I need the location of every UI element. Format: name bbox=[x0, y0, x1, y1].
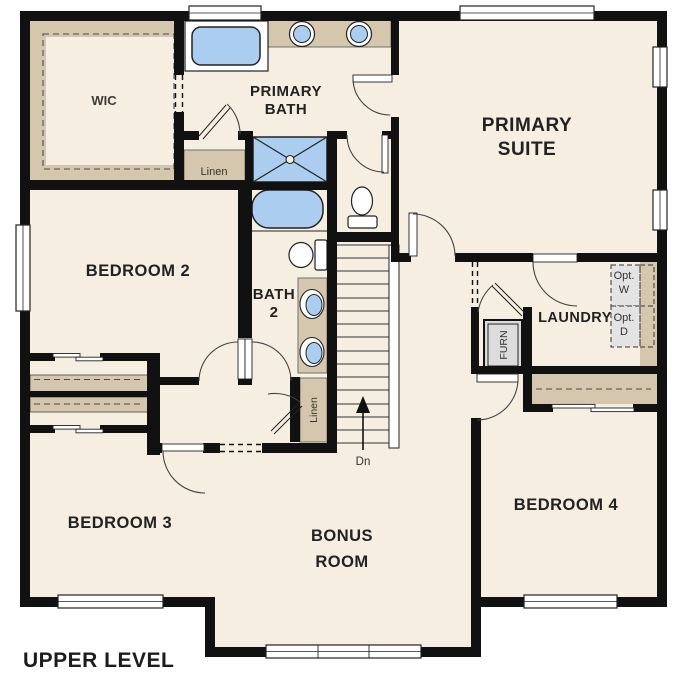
bedroom2-closet bbox=[30, 375, 148, 392]
primary-suite-top-window bbox=[460, 6, 594, 20]
linen-upper-label: Linen bbox=[201, 166, 228, 178]
bedroom4-closet-slider bbox=[552, 404, 595, 408]
primary-suite-right-window-1 bbox=[653, 47, 667, 87]
water-closet-door-panel bbox=[382, 135, 388, 173]
bath2-label-2: 2 bbox=[270, 304, 279, 321]
bedroom4-label: BEDROOM 4 bbox=[514, 496, 619, 514]
primary-vanity-counter bbox=[267, 20, 391, 47]
primary-sink-right-basin bbox=[351, 26, 368, 43]
bonus-room-label-1: BONUS bbox=[311, 527, 373, 545]
bath2-sink-bottom-basin bbox=[306, 343, 322, 364]
stairs-down-label: Dn bbox=[356, 456, 371, 468]
opt-dryer-label-2: D bbox=[620, 326, 628, 338]
bath2-sink-top-basin bbox=[306, 295, 322, 316]
bath2-bathtub-icon bbox=[252, 190, 323, 228]
opt-dryer-label-1: Opt. bbox=[614, 312, 635, 324]
primary-bath-label-1: PRIMARY bbox=[250, 83, 322, 100]
bedroom4-window bbox=[524, 595, 617, 608]
bedroom3-window bbox=[58, 595, 163, 608]
primary-bath-window bbox=[189, 6, 261, 20]
laundry-label: LAUNDRY bbox=[538, 310, 612, 326]
primary-suite-label-2: SUITE bbox=[498, 139, 556, 160]
linen-hall-label: Linen bbox=[308, 397, 320, 423]
bonus-room-window bbox=[266, 645, 421, 658]
primary-suite-door-panel bbox=[409, 213, 417, 256]
opt-washer-label-2: W bbox=[619, 284, 630, 296]
primary-suite-label-1: PRIMARY bbox=[482, 115, 572, 136]
bath-to-suite-door-panel bbox=[353, 75, 392, 82]
bedroom4-door-panel bbox=[477, 374, 518, 382]
bedroom2-window bbox=[16, 225, 30, 311]
primary-sink-left-basin bbox=[294, 26, 311, 43]
bath2-label-1: BATH bbox=[253, 286, 296, 303]
primary-bath-label-2: BATH bbox=[265, 101, 308, 118]
bath2-toilet-icon bbox=[289, 240, 327, 270]
floor-plan-drawing: WIC PRIMARY BATH PRIMARY SUITE BEDROOM 2… bbox=[0, 0, 687, 687]
primary-suite-right-window-2 bbox=[653, 190, 667, 230]
laundry-door-panel bbox=[533, 254, 577, 262]
shower-icon bbox=[253, 137, 327, 182]
bedroom2-closet-slider bbox=[53, 354, 80, 358]
bonus-room-label-2: ROOM bbox=[315, 553, 368, 571]
bath2-door-panel bbox=[245, 339, 252, 379]
primary-bathtub-icon bbox=[192, 27, 260, 65]
bedroom2-door-panel bbox=[238, 339, 245, 379]
stair-rail bbox=[389, 245, 399, 448]
plan-title: UPPER LEVEL bbox=[23, 649, 174, 672]
opt-washer-label-1: Opt. bbox=[614, 270, 635, 282]
furnace-label: FURN bbox=[498, 330, 510, 359]
bedroom3-door-panel bbox=[162, 444, 204, 451]
wic-label: WIC bbox=[91, 93, 117, 108]
bedroom2-label: BEDROOM 2 bbox=[86, 262, 190, 280]
bedroom3-closet-slider bbox=[53, 426, 80, 430]
floor-plan-viewer: WIC PRIMARY BATH PRIMARY SUITE BEDROOM 2… bbox=[0, 0, 687, 687]
bedroom3-label: BEDROOM 3 bbox=[68, 514, 172, 532]
